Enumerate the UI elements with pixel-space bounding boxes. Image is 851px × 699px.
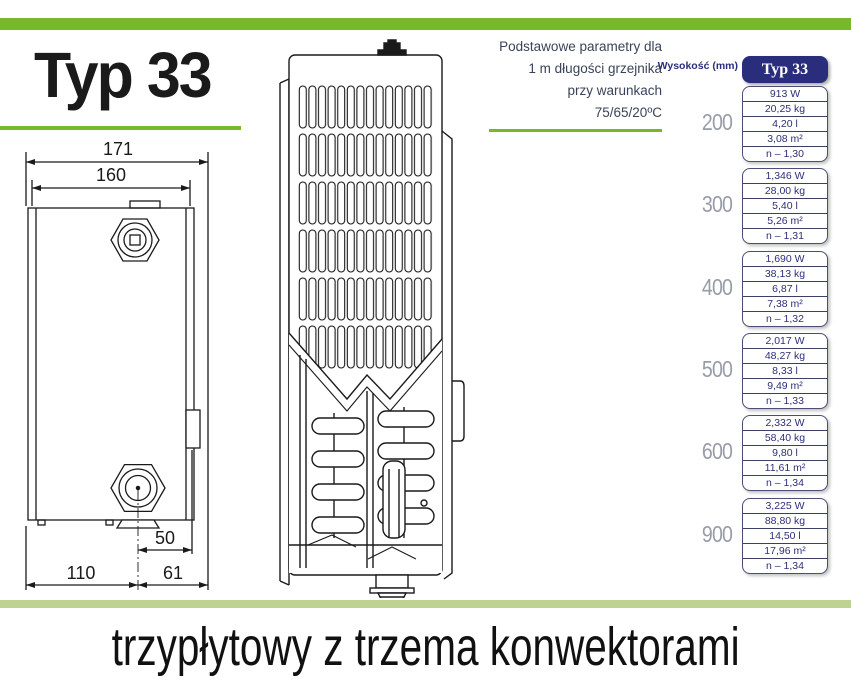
height-label: 900	[664, 521, 732, 548]
value-volume: 5,40 l	[743, 199, 827, 214]
value-area: 5,26 m²	[743, 214, 827, 229]
grille-slots	[298, 83, 433, 371]
page-title: Typ 33	[34, 38, 211, 112]
table-group-300: 1,346 W 28,00 kg 5,40 l 5,26 m² n – 1,31	[742, 168, 828, 244]
dim-label-171: 171	[103, 139, 133, 159]
value-power: 1,690 W	[743, 252, 827, 267]
value-power: 913 W	[743, 87, 827, 102]
value-volume: 4,20 l	[743, 117, 827, 132]
value-volume: 6,87 l	[743, 282, 827, 297]
note-line: przy warunkach	[470, 80, 662, 102]
note-line: Podstawowe parametry dla	[470, 36, 662, 58]
table-column-header: Typ 33	[742, 56, 828, 83]
left-panel-edge	[280, 79, 289, 585]
parameters-note: Podstawowe parametry dla 1 m długości gr…	[470, 36, 662, 124]
subtitle-wrap: trzypłytowy z trzema konwektorami	[0, 616, 851, 678]
air-vent	[378, 40, 406, 55]
note-underline	[489, 129, 662, 132]
height-label: 200	[664, 109, 732, 136]
note-line: 75/65/20ºC	[470, 102, 662, 124]
value-exponent: n – 1,32	[743, 312, 827, 326]
table-group-600: 2,332 W 58,40 kg 9,80 l 11,61 m² n – 1,3…	[742, 415, 828, 491]
value-power: 2,017 W	[743, 334, 827, 349]
dim-label-61: 61	[163, 563, 183, 583]
page-subtitle: trzypłytowy z trzema konwektorami	[112, 616, 740, 678]
value-exponent: n – 1,33	[743, 394, 827, 408]
table-group-400: 1,690 W 38,13 kg 6,87 l 7,38 m² n – 1,32	[742, 251, 828, 327]
value-area: 11,61 m²	[743, 461, 827, 476]
value-weight: 48,27 kg	[743, 349, 827, 364]
bottom-accent-bar	[0, 600, 851, 608]
value-exponent: n – 1,34	[743, 476, 827, 490]
drain-plug	[370, 575, 414, 598]
value-power: 1,346 W	[743, 169, 827, 184]
value-volume: 8,33 l	[743, 364, 827, 379]
table-group-500: 2,017 W 48,27 kg 8,33 l 9,49 m² n – 1,33	[742, 333, 828, 409]
value-area: 3,08 m²	[743, 132, 827, 147]
wall-bracket	[186, 410, 200, 448]
value-volume: 14,50 l	[743, 529, 827, 544]
value-weight: 28,00 kg	[743, 184, 827, 199]
dim-label-160: 160	[96, 165, 126, 185]
value-volume: 9,80 l	[743, 446, 827, 461]
value-weight: 20,25 kg	[743, 102, 827, 117]
note-line: 1 m długości grzejnika	[470, 58, 662, 80]
height-label: 600	[664, 438, 732, 465]
table-group-900: 3,225 W 88,80 kg 14,50 l 17,96 m² n – 1,…	[742, 498, 828, 574]
value-exponent: n – 1,34	[743, 559, 827, 573]
value-power: 3,225 W	[743, 499, 827, 514]
title-underline	[0, 126, 241, 130]
value-power: 2,332 W	[743, 416, 827, 431]
value-area: 17,96 m²	[743, 544, 827, 559]
value-weight: 58,40 kg	[743, 431, 827, 446]
right-panel-edge	[442, 131, 464, 579]
value-weight: 38,13 kg	[743, 267, 827, 282]
table-group-200: 913 W 20,25 kg 4,20 l 3,08 m² n – 1,30	[742, 86, 828, 162]
value-area: 7,38 m²	[743, 297, 827, 312]
height-label: 300	[664, 191, 732, 218]
table-row-header: Wysokość (mm)	[646, 60, 738, 72]
front-view-drawing	[272, 33, 477, 598]
dim-label-50: 50	[155, 528, 175, 548]
dim-label-110: 110	[67, 563, 96, 583]
drain-tube	[383, 461, 405, 538]
value-exponent: n – 1,30	[743, 147, 827, 161]
height-label: 500	[664, 356, 732, 383]
radiator-body-side	[28, 208, 194, 520]
side-view-drawing: 171 160	[18, 138, 228, 603]
value-weight: 88,80 kg	[743, 514, 827, 529]
top-accent-bar	[0, 18, 851, 30]
value-area: 9,49 m²	[743, 379, 827, 394]
datasheet-page: Typ 33 Podstawowe parametry dla 1 m dług…	[0, 0, 851, 699]
height-label: 400	[664, 274, 732, 301]
value-exponent: n – 1,31	[743, 229, 827, 243]
